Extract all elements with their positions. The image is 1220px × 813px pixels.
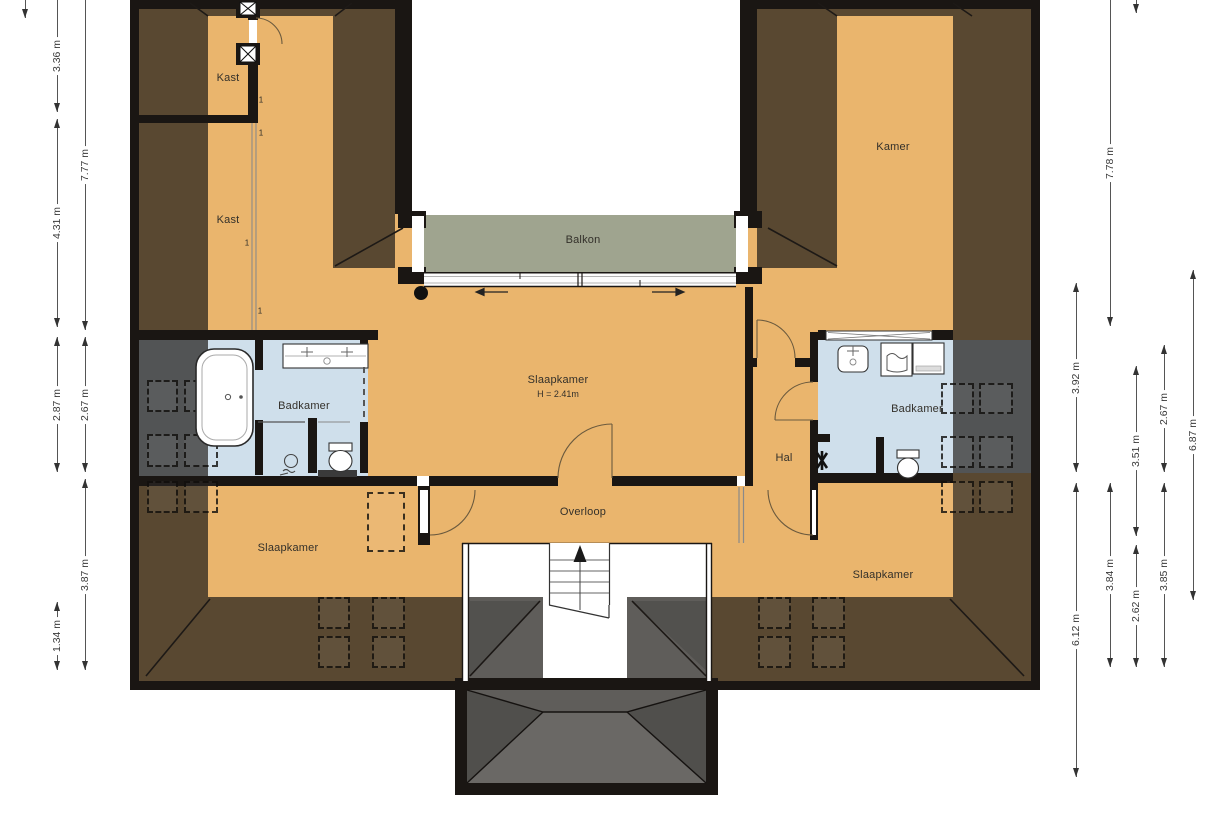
arrow-right-icon bbox=[676, 289, 684, 296]
annotation-mark: 1 bbox=[245, 239, 249, 248]
room-label-overloop: Overloop bbox=[560, 506, 606, 518]
dimension-arrow-up-icon bbox=[1107, 483, 1113, 492]
room-label-balkon: Balkon bbox=[566, 234, 601, 246]
dimension-arrow-up-icon bbox=[1073, 483, 1079, 492]
dimension-arrow-down-icon bbox=[82, 463, 88, 472]
annotation-mark: 1 bbox=[259, 96, 263, 105]
dimension-arrow-up-icon bbox=[82, 337, 88, 346]
dimension-label: 3.85 m bbox=[1158, 556, 1170, 594]
dimension-arrow-down-icon bbox=[1107, 317, 1113, 326]
dimension-label: 3.92 m bbox=[1070, 358, 1082, 396]
dimension-label: 3.84 m bbox=[1104, 556, 1116, 594]
sliding-door-arrows bbox=[476, 289, 684, 296]
appliance bbox=[913, 343, 944, 374]
dimension-arrow-down-icon bbox=[22, 9, 28, 18]
dimension-arrow-down-icon bbox=[54, 463, 60, 472]
door-arc-badkamer-rechts bbox=[775, 382, 813, 420]
dimension-arrow-up-icon bbox=[54, 119, 60, 128]
dimension-arrow-down-icon bbox=[54, 103, 60, 112]
door-arc-hal-noord bbox=[757, 320, 795, 358]
annotation-mark: 1 bbox=[258, 307, 262, 316]
dimension-label: 2.62 m bbox=[1130, 587, 1142, 625]
toilet-left bbox=[318, 443, 357, 477]
dimension-arrow-up-icon bbox=[1161, 345, 1167, 354]
dimension-arrow-up-icon bbox=[1133, 366, 1139, 375]
dimension-label: 2.87 m bbox=[51, 385, 63, 423]
dimension-label: 6.12 m bbox=[1070, 611, 1082, 649]
dimension-label: 7.78 m bbox=[1104, 144, 1116, 182]
dimension-arrow-down-icon bbox=[1161, 658, 1167, 667]
dimension-arrow-up-icon bbox=[1133, 545, 1139, 554]
dimension-arrow-up-icon bbox=[54, 602, 60, 611]
dimension-label: 3.87 m bbox=[79, 555, 91, 593]
dimension-label: 2.67 m bbox=[1158, 389, 1170, 427]
bathtub bbox=[196, 349, 253, 446]
door-arc-slaapkamer-links bbox=[430, 490, 475, 535]
dimension-label: 3.36 m bbox=[51, 37, 63, 75]
detail-drawing bbox=[0, 0, 1220, 813]
dimension-arrow-down-icon bbox=[82, 661, 88, 670]
double-washbasin bbox=[283, 344, 368, 368]
dimension-arrow-up-icon bbox=[54, 337, 60, 346]
room-label-slaapkamer-midden: Slaapkamer bbox=[528, 374, 589, 386]
dimension-arrow-down-icon bbox=[1133, 527, 1139, 536]
dimension-arrow-down-icon bbox=[1073, 768, 1079, 777]
dimension-arrow-down-icon bbox=[54, 318, 60, 327]
dimension-label: 3.51 m bbox=[1130, 432, 1142, 470]
room-label-badkamer-rechts: Badkamer bbox=[891, 403, 943, 415]
toilet-right bbox=[897, 450, 919, 478]
dimension-label: 1.34 m bbox=[51, 617, 63, 655]
dimension-arrow-up-icon bbox=[82, 479, 88, 488]
door-arc-kast bbox=[256, 18, 282, 44]
dimension-arrow-down-icon bbox=[1161, 463, 1167, 472]
arrow-left-icon bbox=[476, 289, 484, 296]
staircase bbox=[549, 543, 610, 618]
dimension-arrow-up-icon bbox=[1161, 483, 1167, 492]
room-label-hal: Hal bbox=[775, 452, 792, 464]
dimension-arrow-down-icon bbox=[82, 321, 88, 330]
dimension-arrow-down-icon bbox=[1107, 658, 1113, 667]
room-label-slaapkamer-rechts: Slaapkamer bbox=[853, 569, 914, 581]
flue-duct-icon bbox=[236, 0, 260, 65]
shower-icon bbox=[280, 455, 298, 476]
balcony-window-band bbox=[424, 272, 736, 287]
dimension-arrow-down-icon bbox=[54, 661, 60, 670]
washbasin-right bbox=[838, 346, 868, 372]
column-dot bbox=[414, 286, 428, 300]
dimension-label: 7.77 m bbox=[79, 146, 91, 184]
dimension-arrow-down-icon bbox=[1190, 591, 1196, 600]
room-label-kast-2: Kast bbox=[217, 214, 240, 226]
glazing-band bbox=[826, 331, 932, 340]
closet-track-line bbox=[252, 123, 256, 330]
dimension-label: 4.31 m bbox=[51, 204, 63, 242]
floorplan-canvas: KastKastKamerBalkonSlaapkamerH = 2.41mBa… bbox=[0, 0, 1220, 813]
dimension-label: 6.87 m bbox=[1187, 416, 1199, 454]
radiator-icon bbox=[817, 451, 827, 470]
room-height-slaapkamer-midden: H = 2.41m bbox=[537, 389, 579, 399]
room-label-kast-1: Kast bbox=[217, 72, 240, 84]
room-label-kamer: Kamer bbox=[876, 141, 909, 153]
annotation-mark: 1 bbox=[259, 129, 263, 138]
dimension-arrow-down-icon bbox=[1133, 658, 1139, 667]
dimension-arrow-up-icon bbox=[1190, 270, 1196, 279]
washing-machine bbox=[881, 343, 912, 376]
dimension-arrow-up-icon bbox=[1073, 283, 1079, 292]
door-arc-slaapkamer-midden bbox=[558, 424, 612, 478]
room-label-slaapkamer-links: Slaapkamer bbox=[258, 542, 319, 554]
dimension-label: 2.67 m bbox=[79, 385, 91, 423]
door-arc-slaapkamer-rechts bbox=[768, 490, 813, 535]
dimension-arrow-down-icon bbox=[1133, 4, 1139, 13]
dimension-arrow-down-icon bbox=[1073, 463, 1079, 472]
roof-protrusion bbox=[455, 678, 718, 795]
void-roof-slope-left bbox=[470, 601, 540, 676]
room-label-badkamer-links: Badkamer bbox=[278, 400, 330, 412]
void-roof-slope-right bbox=[632, 601, 712, 676]
